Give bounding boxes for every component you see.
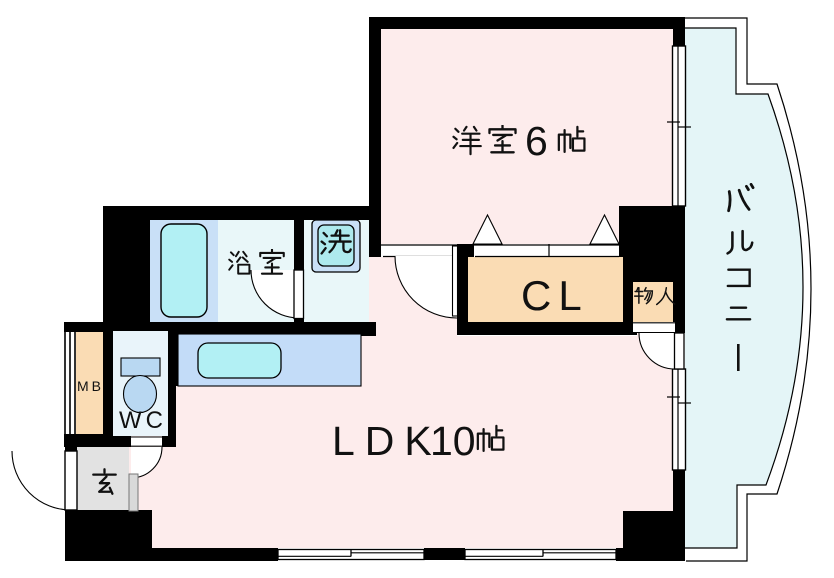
svg-text:10: 10 — [430, 418, 476, 464]
svg-text:6: 6 — [525, 118, 548, 164]
svg-text:WC: WC — [119, 407, 167, 434]
svg-text:LDK: LDK — [332, 418, 442, 464]
svg-text:MB: MB — [77, 378, 104, 394]
svg-text:CL: CL — [521, 272, 589, 319]
